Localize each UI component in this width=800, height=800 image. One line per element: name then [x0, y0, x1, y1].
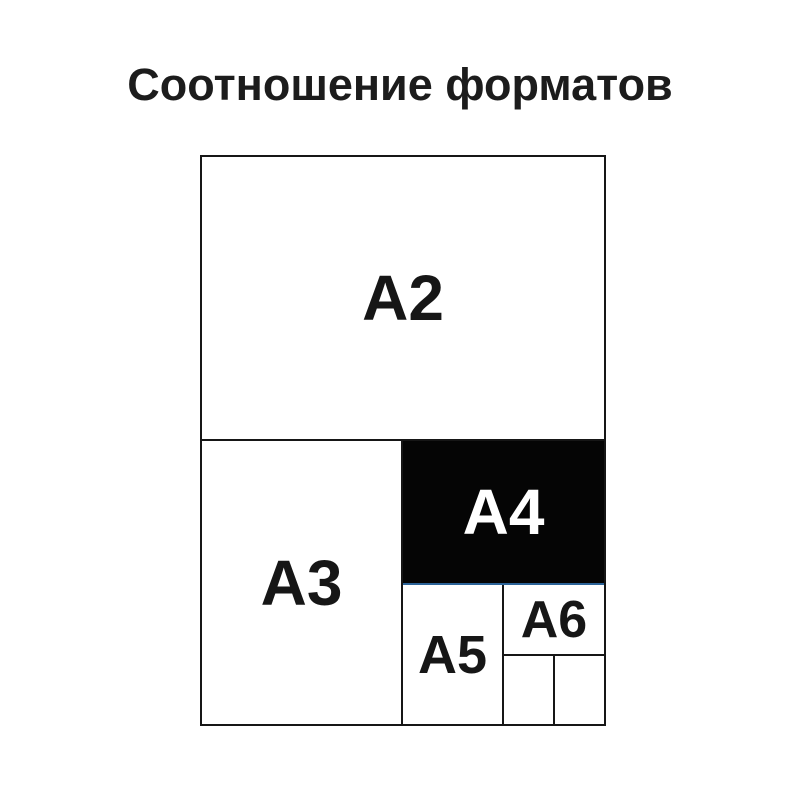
a2-region: A2: [202, 157, 604, 441]
a6-region: A6: [504, 585, 604, 656]
a3-label: A3: [261, 551, 343, 615]
a5-label: A5: [418, 628, 487, 682]
a6-label: A6: [521, 594, 587, 646]
a3-region: A3: [202, 441, 403, 724]
paper-format-diagram: A2 A3 A4 A5 A6: [200, 155, 606, 726]
small-unlabeled-cell-right: [555, 656, 604, 724]
a5-region: A5: [403, 585, 504, 724]
page-title: Соотношение форматов: [0, 59, 800, 111]
a4-region-highlighted: A4: [403, 441, 604, 585]
a4-label: A4: [463, 480, 545, 544]
small-unlabeled-cell-left: [504, 656, 555, 724]
a2-label: A2: [362, 266, 444, 330]
